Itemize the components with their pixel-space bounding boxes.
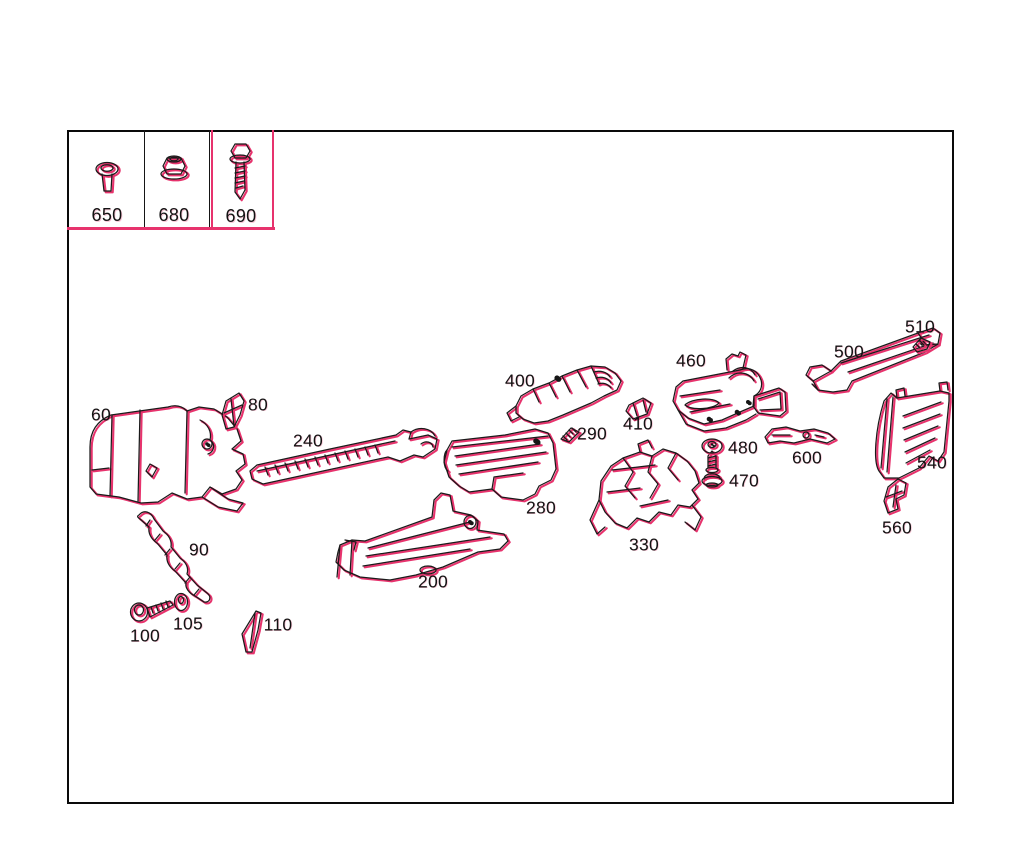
part-label-510[interactable]: 510: [905, 318, 935, 336]
part-label-90[interactable]: 90: [189, 541, 209, 559]
part-label-80[interactable]: 80: [248, 396, 268, 414]
part-label-480[interactable]: 480: [728, 439, 758, 457]
part-80-drawing[interactable]: [222, 393, 246, 430]
legend-label-680[interactable]: 680: [159, 206, 190, 224]
part-label-400[interactable]: 400: [505, 372, 535, 390]
part-330-drawing[interactable]: [590, 440, 703, 535]
part-label-60[interactable]: 60: [91, 406, 111, 424]
parts-diagram-page: 650 680 690 60 80 90 100 105 110 200 240…: [0, 0, 1024, 858]
part-label-460[interactable]: 460: [676, 352, 706, 370]
part-label-470[interactable]: 470: [729, 472, 759, 490]
part-240-drawing[interactable]: [250, 429, 439, 486]
legend-label-690[interactable]: 690: [226, 207, 257, 225]
part-60-drawing[interactable]: [90, 406, 247, 513]
part-600-drawing[interactable]: [765, 427, 837, 444]
part-label-110[interactable]: 110: [264, 616, 293, 634]
part-110-drawing[interactable]: [242, 611, 263, 653]
part-105-drawing[interactable]: [175, 594, 190, 612]
exploded-parts-drawing: [0, 0, 1024, 858]
part-560-drawing[interactable]: [884, 479, 908, 514]
part-100-drawing[interactable]: [131, 601, 175, 622]
part-label-100[interactable]: 100: [130, 627, 160, 645]
part-label-410[interactable]: 410: [623, 415, 653, 433]
part-label-290[interactable]: 290: [577, 425, 607, 443]
part-470-drawing[interactable]: [702, 451, 724, 488]
part-label-500[interactable]: 500: [834, 343, 864, 361]
part-200-drawing[interactable]: [336, 493, 510, 581]
part-label-330[interactable]: 330: [629, 536, 659, 554]
part-label-600[interactable]: 600: [792, 449, 822, 467]
legend-label-650[interactable]: 650: [92, 206, 123, 224]
part-280-drawing[interactable]: [444, 429, 558, 501]
part-label-240[interactable]: 240: [293, 432, 323, 450]
part-label-560[interactable]: 560: [882, 519, 912, 537]
part-label-540[interactable]: 540: [917, 454, 947, 472]
part-label-105[interactable]: 105: [173, 615, 203, 633]
part-label-280[interactable]: 280: [526, 499, 556, 517]
part-label-200[interactable]: 200: [418, 573, 448, 591]
